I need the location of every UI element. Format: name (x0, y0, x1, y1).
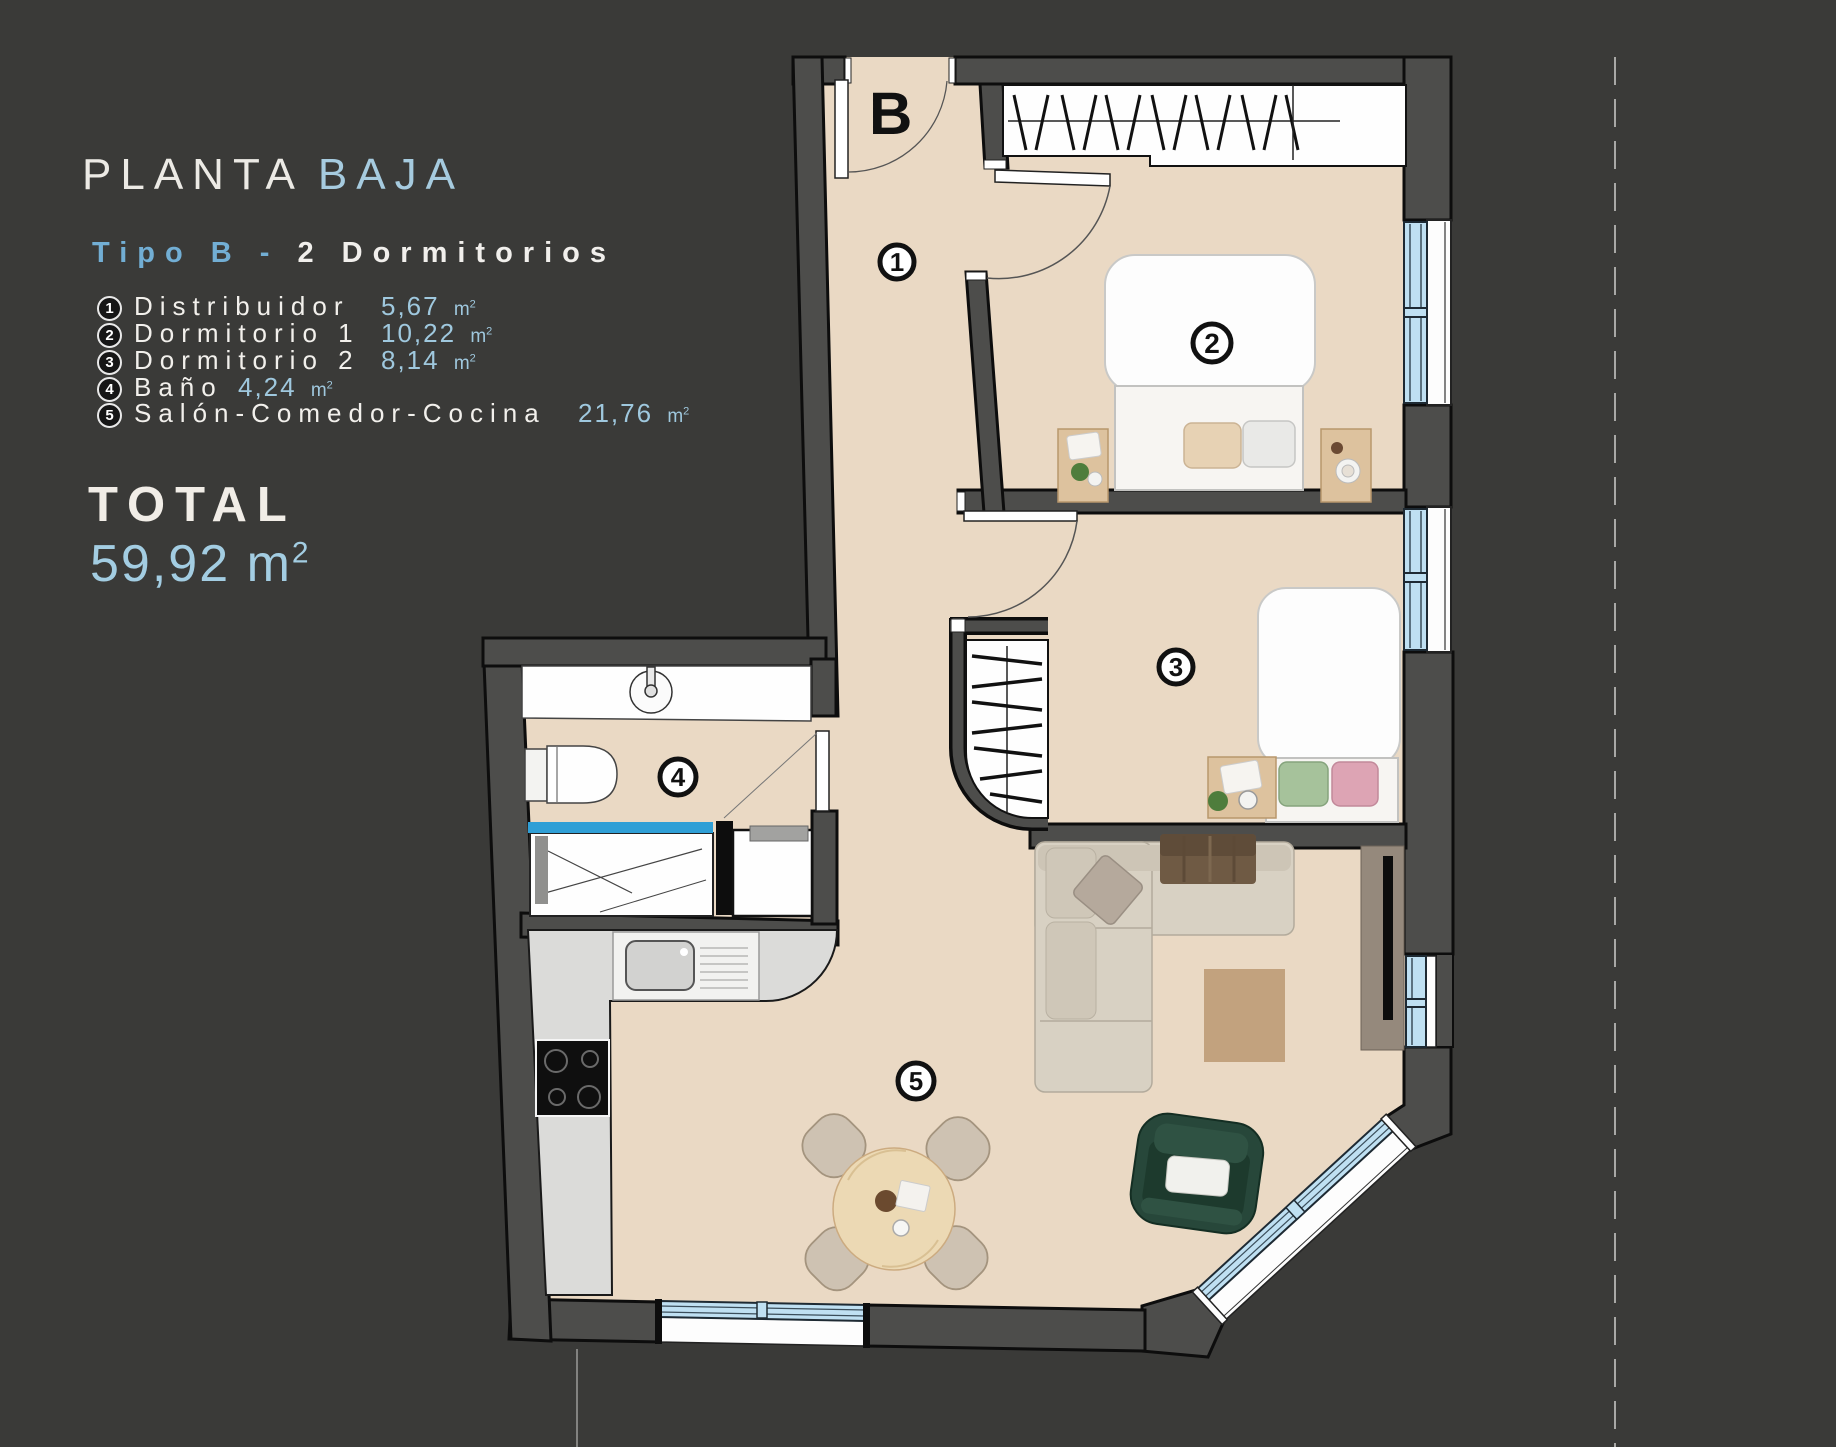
svg-text:4: 4 (671, 762, 686, 792)
svg-text:B: B (869, 80, 912, 147)
svg-text:1: 1 (890, 247, 904, 277)
svg-text:3: 3 (1169, 652, 1183, 682)
svg-text:5: 5 (909, 1066, 923, 1096)
svg-text:2: 2 (1204, 328, 1220, 359)
